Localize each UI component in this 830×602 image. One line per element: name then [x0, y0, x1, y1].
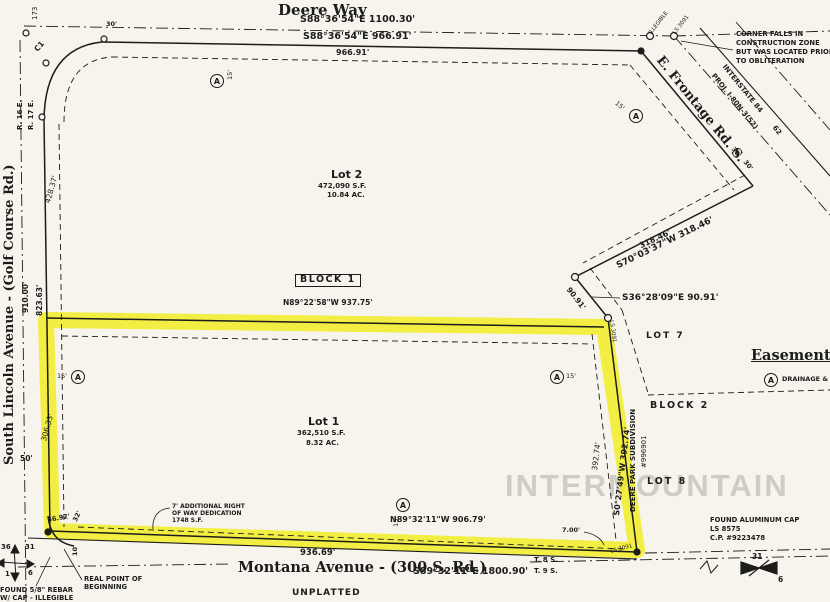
- note-rebar-line2: W/ CAP - ILLEGIBLE: [0, 595, 73, 602]
- dim-south-offset: N89°32'11"W 906.79': [390, 515, 486, 524]
- note-cap-line3: C.P. #9223478: [710, 535, 765, 543]
- dim-width-30: 30': [106, 21, 117, 28]
- township-8s-label: T. 8 S.: [534, 556, 558, 564]
- note-row-line3: 1748 S.F.: [172, 518, 203, 525]
- section-6-label: 6: [28, 569, 33, 577]
- dim-south-centerline: S89°32'11"E 1800.90': [413, 567, 528, 578]
- dim-south-boundary: 936.69': [300, 549, 335, 559]
- monument-markers: [23, 30, 678, 555]
- section-1-label: 1: [5, 570, 10, 578]
- street-label-lincoln: South Lincoln Avenue - (Golf Course Rd.): [3, 164, 18, 465]
- note-rpob-line2: BEGINNING: [84, 584, 127, 592]
- note-corner-line2: CONSTRUCTION ZONE: [736, 40, 820, 48]
- section-corner-southeast: [700, 560, 777, 576]
- station-173-label: 173: [31, 7, 39, 20]
- dim-half-width-50: 50': [20, 455, 33, 464]
- dim-mid-boundary: N89°22'58"W 937.75': [283, 299, 373, 308]
- lot2-area-sf: 472,090 S.F.: [318, 182, 366, 190]
- note-corner-line1: CORNER FALLS IN: [736, 31, 803, 39]
- block2-label: BLOCK 2: [650, 401, 709, 412]
- easement-15-label: 15': [566, 373, 576, 380]
- drainage-easement-icon: A: [396, 498, 410, 512]
- note-corner-line4: TO OBLITERATION: [736, 58, 804, 66]
- section-6-label-se: 6: [778, 576, 783, 585]
- range-line-east: R. 17 E.: [27, 100, 35, 130]
- lot7-label: LOT 7: [646, 331, 685, 341]
- range-line-west: R. 16 E.: [16, 100, 24, 130]
- lot2-area-ac: 10.84 AC.: [327, 191, 365, 199]
- lot2-name: Lot 2: [331, 169, 362, 182]
- subdivision-number: #996901: [640, 435, 648, 468]
- township-9s-label: T. 9 S.: [534, 567, 558, 575]
- dim-se-diag-callout: S36°28'09"E 90.91': [622, 293, 719, 303]
- easement-legend-item: DRAINAGE &: [782, 376, 828, 383]
- lot1-name: Lot 1: [308, 416, 339, 429]
- lot8-label: LOT 8: [647, 477, 687, 488]
- dim-west-centerline: 910.00': [22, 282, 31, 313]
- section-36-label: 36: [1, 543, 11, 551]
- drainage-easement-icon: A: [210, 74, 224, 88]
- note-cap-line2: LS 8575: [710, 526, 741, 534]
- note-cap-line1: FOUND ALUMINUM CAP: [710, 517, 799, 525]
- section-31-label: 31: [25, 543, 35, 551]
- easement-15-label: 15': [227, 70, 234, 80]
- subdivision-label: DEERE PARK SUBDIVISION: [629, 409, 637, 512]
- easement-15-label: 15': [57, 373, 67, 380]
- dim-sw-10: 10': [72, 545, 79, 556]
- dim-top-boundary: S88°36'54"E 966.91': [303, 32, 411, 43]
- unplatted-label: UNPLATTED: [292, 588, 361, 598]
- note-corner-line3: BUT WAS LOCATED PRIOR: [736, 49, 830, 57]
- dim-top-offset: 966.91': [336, 48, 369, 57]
- section-31-label-se: 31: [752, 553, 762, 562]
- drainage-easement-icon: A: [764, 373, 778, 387]
- drainage-easement-icon: A: [71, 370, 85, 384]
- dim-west-boundary: 823.63': [36, 285, 45, 316]
- dim-top-centerline: S88°36'54"E 1100.30': [300, 15, 415, 26]
- easement-legend-title: Easement: [751, 348, 830, 365]
- lot1-area-sf: 362,510 S.F.: [297, 429, 345, 437]
- drainage-easement-icon: A: [550, 370, 564, 384]
- block1-label: BLOCK 1: [295, 274, 361, 287]
- drainage-easement-icon: A: [629, 109, 643, 123]
- lot1-area-ac: 8.32 AC.: [306, 439, 339, 447]
- plat-map: INTERMOUNTAIN: [0, 0, 830, 602]
- dim-jog-7: 7.00': [562, 527, 580, 534]
